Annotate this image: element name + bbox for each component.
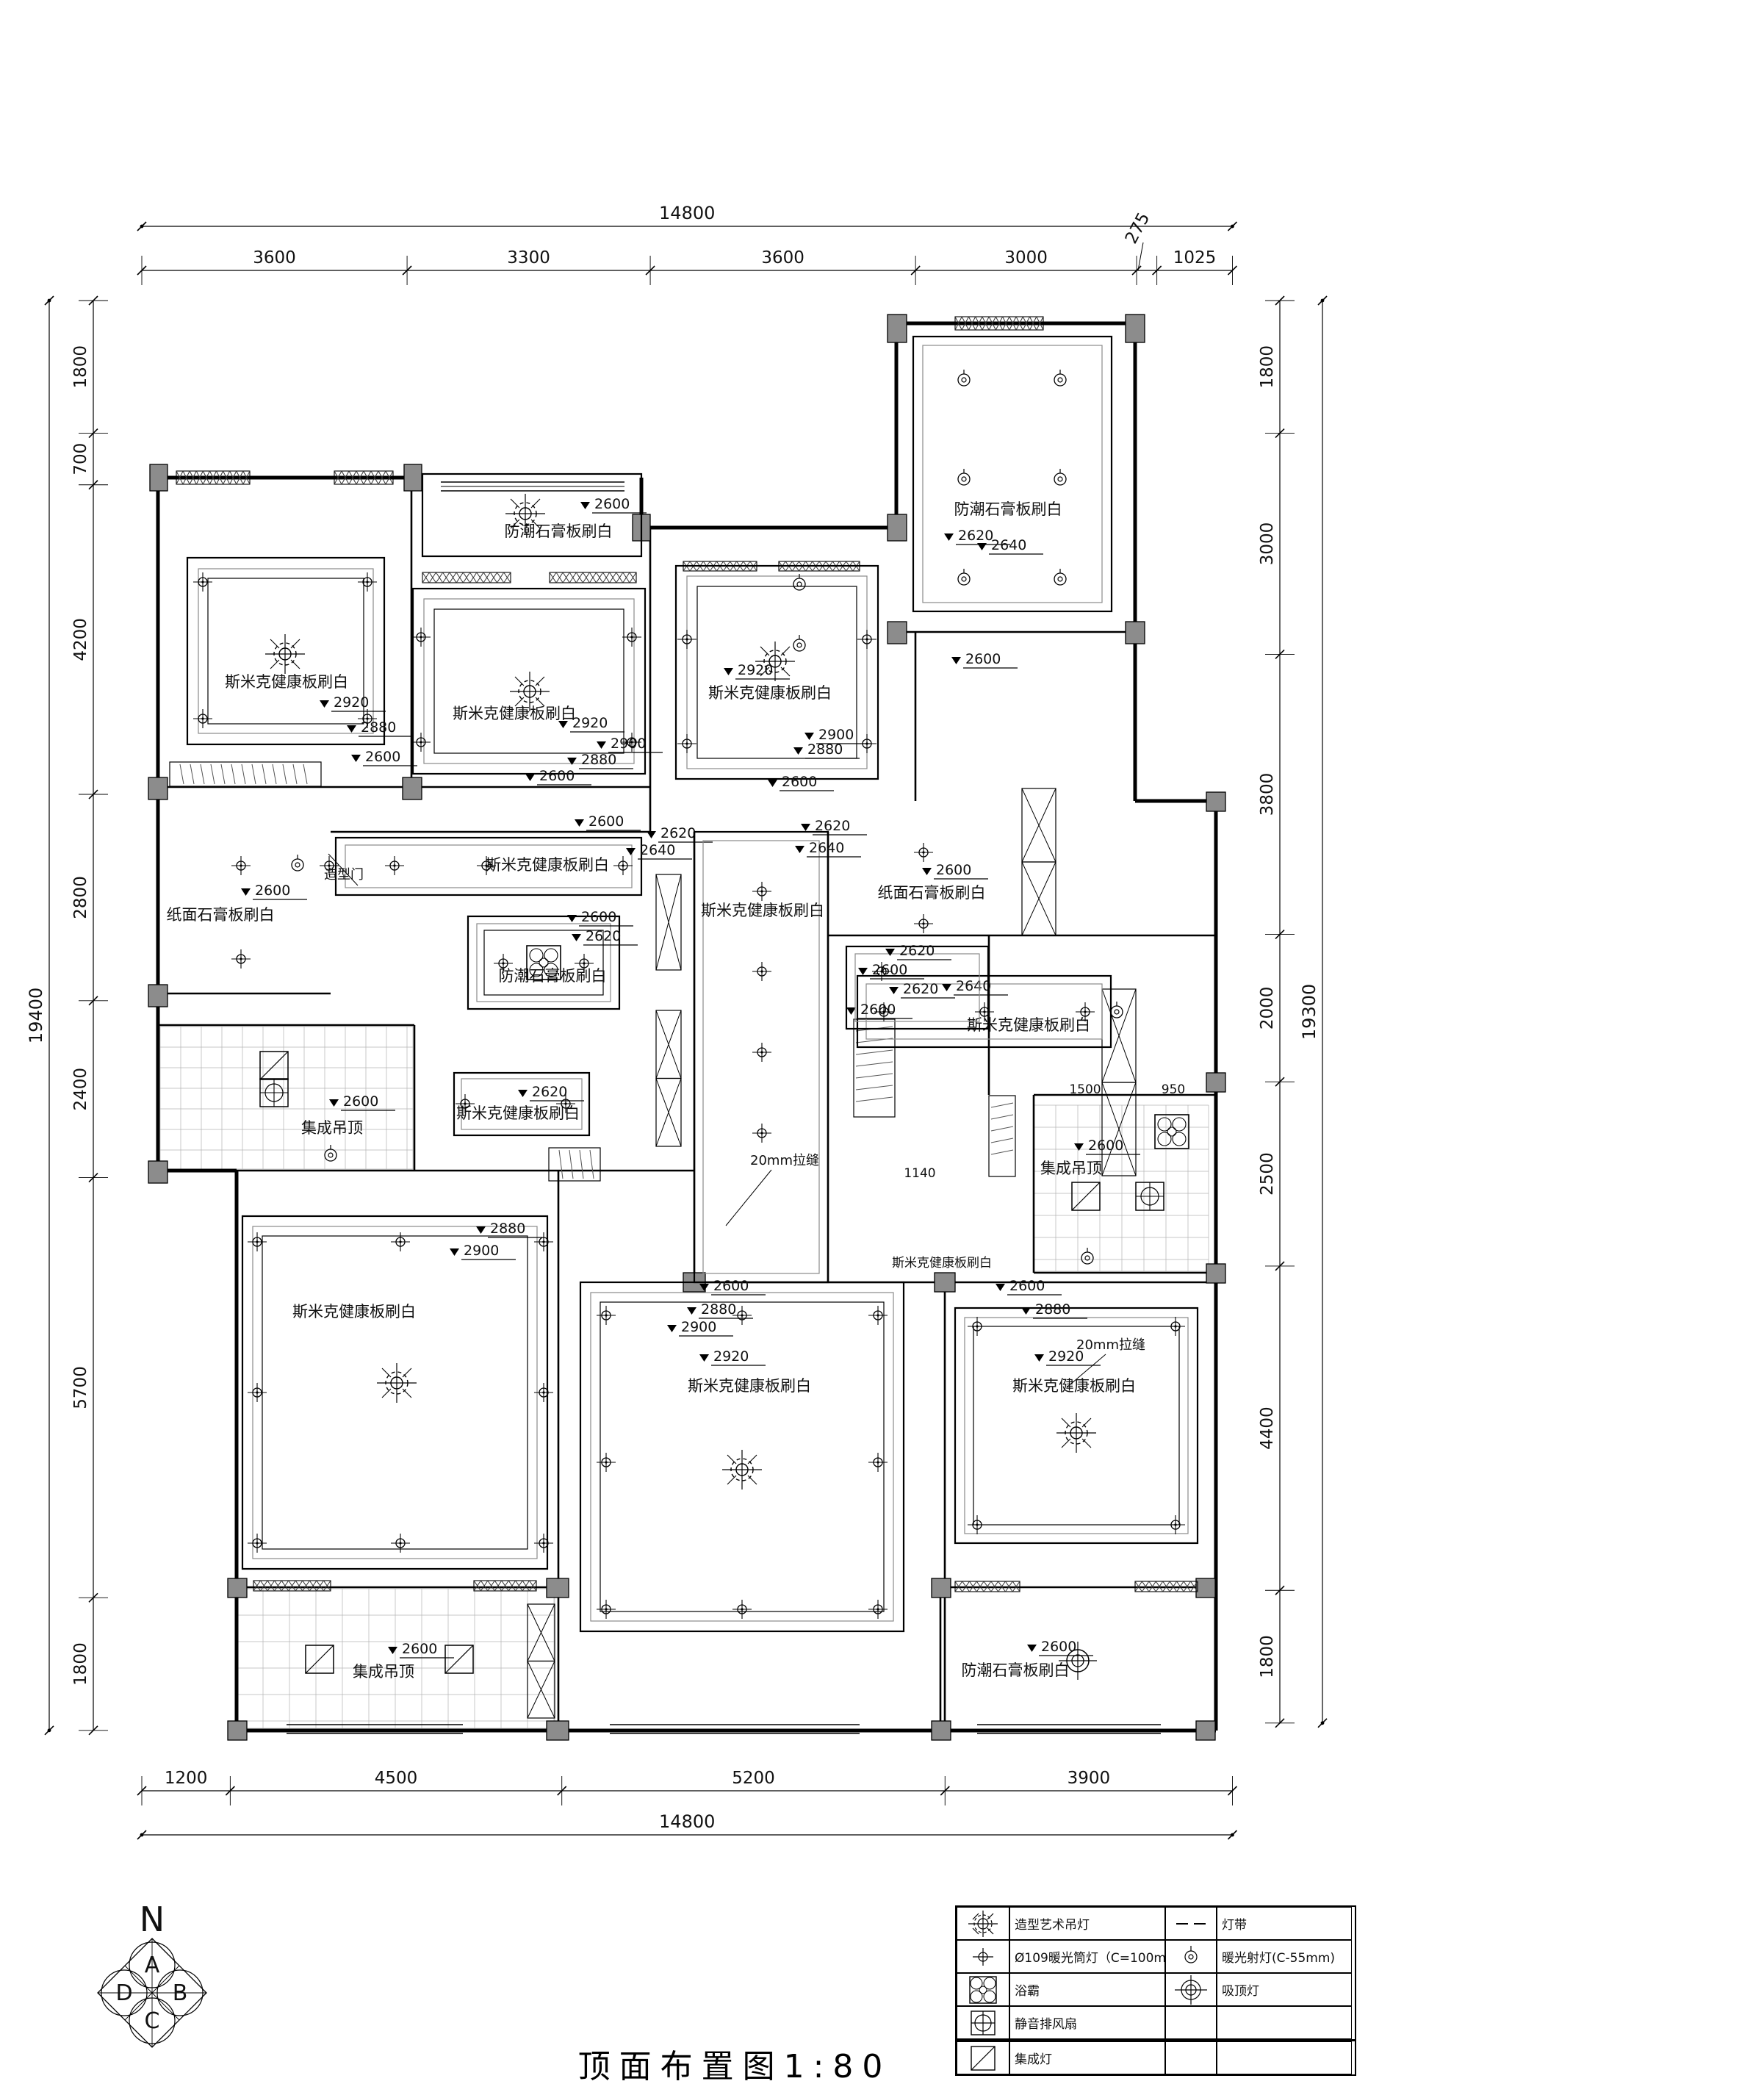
elevation-value: 2640 bbox=[956, 978, 991, 994]
elevation-marker: 2900 bbox=[667, 1319, 733, 1336]
legend-label: 浴霸 bbox=[1009, 1973, 1165, 2006]
legend-row: 浴霸吸顶灯 bbox=[957, 1973, 1355, 2006]
elevation-value: 2600 bbox=[1009, 1278, 1045, 1294]
compass: NABCD bbox=[98, 1900, 206, 2047]
legend-label bbox=[1217, 2006, 1352, 2039]
downlight-icon bbox=[677, 734, 696, 753]
chandelier-icon bbox=[1056, 1413, 1096, 1453]
ch-legend-icon bbox=[962, 1908, 1004, 1939]
annotation-text: 1140 bbox=[904, 1166, 935, 1181]
elevation-value: 2600 bbox=[936, 862, 971, 878]
dimension-value: 700 bbox=[71, 443, 90, 475]
legend-symbol-cell bbox=[957, 1907, 1009, 1940]
legend-row: Ø109暖光筒灯（C=100mm）暖光射灯(C-55mm) bbox=[957, 1940, 1355, 1973]
downlight-icon bbox=[231, 856, 251, 875]
legend-symbol-cell bbox=[957, 1940, 1009, 1973]
room: 纸面石膏板刷白2600 bbox=[878, 862, 989, 902]
window-coil bbox=[422, 572, 511, 583]
downlight-icon bbox=[752, 1043, 771, 1062]
elevation-marker: 2880 bbox=[567, 752, 633, 769]
elevation-value: 2880 bbox=[1035, 1301, 1070, 1318]
room: 斯米克健康板刷白260028802920 bbox=[955, 1278, 1198, 1543]
elevation-marker: 2640 bbox=[942, 978, 1008, 995]
downlight-icon bbox=[732, 1600, 752, 1619]
room: 集成吊顶2600 bbox=[301, 1093, 395, 1137]
dimension-total: 14800 bbox=[659, 203, 715, 223]
elevation-value: 2900 bbox=[464, 1243, 499, 1259]
cl-legend-icon bbox=[1170, 1974, 1212, 2005]
elevation-marker: 2600 bbox=[388, 1641, 454, 1658]
dimension-value: 1800 bbox=[71, 345, 90, 389]
dimension-value: 3000 bbox=[1004, 248, 1048, 267]
ceiling-plan-page: 斯米克健康板刷白292028802600斯米克健康板刷白292029002880… bbox=[0, 0, 1764, 2095]
annotation-text: 1500 bbox=[1069, 1082, 1101, 1097]
elevation-value: 2620 bbox=[958, 528, 993, 544]
dimension-value: 2500 bbox=[1258, 1152, 1277, 1196]
legend-row: 集成灯 bbox=[957, 2039, 1355, 2074]
dimension-value: 275 bbox=[1122, 209, 1154, 247]
compass-sector-label: B bbox=[173, 1980, 188, 2006]
integrated-light-icon bbox=[306, 1645, 334, 1673]
elevation-marker: 2600 bbox=[768, 774, 834, 791]
legend-label: 吸顶灯 bbox=[1217, 1973, 1352, 2006]
exhaust-fan-icon bbox=[1136, 1182, 1164, 1210]
dimension-value: 3900 bbox=[1068, 1769, 1111, 1788]
legend-table: 造型艺术吊灯灯带Ø109暖光筒灯（C=100mm）暖光射灯(C-55mm)浴霸吸… bbox=[955, 1905, 1356, 2076]
chandelier-icon bbox=[505, 494, 545, 533]
spotlight-icon bbox=[292, 855, 303, 871]
legend-label: 集成灯 bbox=[1009, 2041, 1165, 2074]
downlight-icon bbox=[914, 843, 933, 862]
downlight-icon bbox=[752, 1124, 771, 1143]
spotlight-icon bbox=[1054, 370, 1066, 386]
elevation-marker: 2600 bbox=[580, 496, 647, 513]
dimension-value: 5700 bbox=[71, 1366, 90, 1409]
dimension-value: 1800 bbox=[71, 1642, 90, 1686]
downlight-icon bbox=[411, 628, 431, 647]
downlight-icon bbox=[968, 1515, 987, 1534]
downlight-icon bbox=[752, 882, 771, 901]
downlight-icon bbox=[968, 1317, 987, 1336]
room-ceiling-label: 斯米克健康板刷白 bbox=[688, 1377, 811, 1395]
legend-label: 灯带 bbox=[1217, 1907, 1352, 1940]
room-ceiling-label: 纸面石膏板刷白 bbox=[167, 906, 275, 924]
spotlight-icon bbox=[1081, 1248, 1093, 1264]
room: 纸面石膏板刷白2600 bbox=[167, 883, 308, 924]
elevation-value: 2920 bbox=[572, 715, 608, 731]
elevation-value: 2600 bbox=[255, 883, 290, 899]
elevation-value: 2620 bbox=[815, 818, 850, 834]
elevation-marker: 2600 bbox=[951, 651, 1018, 668]
dimension-total: 19400 bbox=[26, 988, 46, 1043]
legend-symbol-cell bbox=[1165, 2006, 1217, 2039]
elevation-value: 2900 bbox=[681, 1319, 716, 1335]
window-coil bbox=[550, 572, 636, 583]
dimension-value: 3800 bbox=[1258, 773, 1277, 816]
il-legend-icon bbox=[962, 2043, 1004, 2074]
downlight-icon bbox=[411, 733, 431, 752]
elevation-value: 2600 bbox=[1088, 1138, 1123, 1154]
downlight-icon bbox=[597, 1453, 616, 1472]
x-hatch bbox=[656, 1010, 681, 1146]
elevation-value: 2880 bbox=[490, 1221, 525, 1237]
elevation-marker: 2600 bbox=[329, 1093, 395, 1110]
room-ceiling-label: 防潮石膏板刷白 bbox=[962, 1661, 1070, 1679]
elevation-marker: 2600 bbox=[525, 768, 591, 785]
elevation-marker: 2600 bbox=[1074, 1138, 1140, 1154]
downlight-icon bbox=[597, 1306, 616, 1325]
elevation-value: 2600 bbox=[343, 1093, 378, 1110]
dimension-bottom: 120045005200390014800 bbox=[137, 1769, 1236, 1839]
downlight-icon bbox=[1166, 1317, 1185, 1336]
legend-symbol-cell bbox=[1165, 1940, 1217, 1973]
window-sill bbox=[441, 482, 624, 491]
elevation-value: 2600 bbox=[402, 1641, 437, 1657]
room: 斯米克健康板刷白26202640 bbox=[694, 818, 867, 1282]
spotlight-icon bbox=[793, 635, 805, 651]
elevation-marker: 2600 bbox=[241, 883, 307, 899]
room: 集成吊顶2600 bbox=[353, 1641, 454, 1681]
elevation-marker: 2620 bbox=[885, 943, 951, 960]
annotation-text: 20mm拉缝 bbox=[750, 1153, 819, 1168]
legend-label: Ø109暖光筒灯（C=100mm） bbox=[1009, 1940, 1165, 1973]
closet-hatch bbox=[854, 1019, 895, 1117]
elevation-marker: 2880 bbox=[476, 1221, 542, 1237]
elevation-value: 2620 bbox=[586, 928, 621, 944]
dimension-value: 2800 bbox=[71, 876, 90, 919]
room-ceiling-label: 斯米克健康板刷白 bbox=[225, 673, 348, 691]
elevation-value: 2600 bbox=[588, 813, 624, 830]
x-hatch bbox=[656, 874, 681, 970]
closet-hatch bbox=[989, 1096, 1015, 1176]
drawing-title: 顶面布置图1:80 bbox=[529, 2040, 940, 2087]
room: 防潮石膏板刷白26002620 bbox=[468, 909, 638, 1009]
room-ceiling-label: 纸面石膏板刷白 bbox=[878, 884, 986, 902]
compass-sector-label: D bbox=[115, 1980, 132, 2006]
elevation-value: 2620 bbox=[660, 825, 696, 841]
legend-symbol-cell bbox=[1165, 1907, 1217, 1940]
rooms: 斯米克健康板刷白292028802600斯米克健康板刷白292029002880… bbox=[167, 337, 1198, 1681]
elevation-value: 2880 bbox=[361, 719, 396, 736]
elevation-marker: 2600 bbox=[1027, 1639, 1093, 1656]
room-ceiling-label: 斯米克健康板刷白 bbox=[701, 902, 824, 919]
elevation-value: 2920 bbox=[738, 662, 773, 678]
legend-symbol-cell bbox=[957, 2006, 1009, 2039]
dimension-total: 19300 bbox=[1299, 984, 1320, 1040]
closet-hatch bbox=[549, 1148, 600, 1181]
downlight-icon bbox=[597, 1600, 616, 1619]
legend-symbol-cell bbox=[1165, 1973, 1217, 2006]
spotlight-icon bbox=[958, 370, 970, 386]
elevation-marker: 2600 bbox=[996, 1278, 1062, 1295]
dimension-value: 4500 bbox=[375, 1769, 418, 1788]
legend-symbol-cell bbox=[957, 2041, 1009, 2074]
elevation-value: 2920 bbox=[334, 694, 369, 711]
closet-hatch bbox=[170, 762, 321, 786]
downlight-icon bbox=[248, 1232, 267, 1251]
spotlight-icon bbox=[1054, 469, 1066, 485]
strip-legend-icon bbox=[1170, 1908, 1212, 1939]
chandelier-icon bbox=[755, 642, 795, 681]
room-ceiling-label: 集成吊顶 bbox=[353, 1663, 414, 1681]
integrated-light-icon bbox=[1072, 1182, 1100, 1210]
elevation-value: 2600 bbox=[782, 774, 817, 790]
downlight-icon bbox=[231, 949, 251, 969]
elevation-marker: 2600 bbox=[575, 813, 641, 830]
dimension-value: 4400 bbox=[1258, 1406, 1277, 1450]
elevation-value: 2920 bbox=[713, 1348, 749, 1365]
compass-sector-label: A bbox=[145, 1952, 160, 1978]
elevation-marker: 2900 bbox=[450, 1243, 516, 1259]
elevation-marker: 2880 bbox=[1021, 1301, 1087, 1318]
downlight-icon bbox=[857, 630, 876, 649]
integrated-light-icon bbox=[445, 1645, 473, 1673]
elevation-value: 2640 bbox=[640, 842, 675, 858]
elevation-marker: 2640 bbox=[626, 842, 692, 859]
dimension-right: 180030003800200025004400180019300 bbox=[1258, 296, 1327, 1728]
downlight-icon bbox=[391, 1534, 410, 1553]
downlight-icon bbox=[613, 856, 633, 875]
floor-plan-drawing: 斯米克健康板刷白292028802600斯米克健康板刷白292029002880… bbox=[0, 0, 1764, 2095]
bath-heater-icon bbox=[1155, 1115, 1189, 1149]
room: 斯米克健康板刷白2920290028802600 bbox=[676, 566, 878, 791]
spotlight-icon bbox=[325, 1145, 336, 1161]
downlight-icon bbox=[857, 734, 876, 753]
downlight-icon bbox=[622, 628, 641, 647]
legend-symbol-cell bbox=[957, 1973, 1009, 2006]
room: 防潮石膏板刷白262026402600 bbox=[913, 337, 1112, 668]
elevation-value: 2600 bbox=[713, 1278, 749, 1294]
elevation-value: 2600 bbox=[539, 768, 575, 784]
legend-label: 静音排风扇 bbox=[1009, 2006, 1165, 2039]
legend-symbol-cell bbox=[1165, 2041, 1217, 2074]
downlight-icon bbox=[914, 914, 933, 933]
dimension-value: 3600 bbox=[253, 248, 296, 267]
downlight-icon bbox=[752, 962, 771, 981]
bh-legend-icon bbox=[962, 1974, 1004, 2005]
elevation-value: 2900 bbox=[611, 736, 646, 752]
chandelier-icon bbox=[722, 1450, 762, 1490]
room-ceiling-label: 斯米克健康板刷白 bbox=[292, 1303, 416, 1320]
room-ceiling-label: 防潮石膏板刷白 bbox=[954, 500, 1062, 518]
elevation-value: 2600 bbox=[860, 1002, 896, 1018]
downlight-icon bbox=[248, 1534, 267, 1553]
dimension-value: 3600 bbox=[761, 248, 804, 267]
room-ceiling-label: 斯米克健康板刷白 bbox=[1012, 1377, 1136, 1395]
dimension-total: 14800 bbox=[659, 1811, 715, 1832]
compass-north-label: N bbox=[140, 1900, 165, 1939]
elevation-value: 2880 bbox=[701, 1301, 736, 1318]
elevation-value: 2600 bbox=[965, 651, 1001, 667]
dimension-value: 4200 bbox=[71, 618, 90, 661]
room-ceiling-label: 集成吊顶 bbox=[1040, 1160, 1102, 1177]
elevation-marker: 2600 bbox=[351, 749, 417, 766]
compass-sector-label: C bbox=[145, 2008, 160, 2034]
legend-label: 造型艺术吊灯 bbox=[1009, 1907, 1165, 1940]
room-ceiling-label: 斯米克健康板刷白 bbox=[456, 1104, 580, 1122]
annotation-text: 斯米克健康板刷白 bbox=[892, 1256, 992, 1271]
spotlight-icon bbox=[1054, 569, 1066, 585]
elevation-value: 2620 bbox=[899, 943, 935, 959]
fan-legend-icon bbox=[962, 2008, 1004, 2038]
downlight-icon bbox=[358, 572, 377, 592]
elevation-marker: 2640 bbox=[795, 840, 861, 857]
elevation-value: 2620 bbox=[532, 1084, 567, 1100]
room: 防潮石膏板刷白2600 bbox=[962, 1639, 1094, 1679]
elevation-marker: 2620 bbox=[518, 1084, 584, 1101]
sp-legend-icon bbox=[1170, 1941, 1212, 1972]
x-hatch bbox=[1022, 788, 1056, 935]
legend-label bbox=[1217, 2041, 1352, 2074]
downlight-icon bbox=[868, 1306, 888, 1325]
spotlight-icon bbox=[958, 469, 970, 485]
window-coil bbox=[474, 1581, 536, 1591]
legend-label: 暖光射灯(C-55mm) bbox=[1217, 1940, 1352, 1973]
room-ceiling-label: 斯米克健康板刷白 bbox=[453, 705, 576, 722]
downlight-icon bbox=[193, 572, 212, 592]
downlight-icon bbox=[385, 856, 404, 875]
downlight-icon bbox=[868, 1453, 888, 1472]
room-ceiling-label: 斯米克健康板刷白 bbox=[708, 684, 832, 702]
room: 斯米克健康板刷白2920290028802600 bbox=[413, 589, 663, 785]
spotlight-icon bbox=[958, 569, 970, 585]
elevation-value: 2620 bbox=[903, 981, 938, 997]
dimension-value: 1200 bbox=[165, 1769, 208, 1788]
elevation-marker: 2920 bbox=[320, 694, 386, 711]
dimension-value: 5200 bbox=[732, 1769, 775, 1788]
window-coil bbox=[253, 1581, 331, 1591]
legend-row: 静音排风扇 bbox=[957, 2006, 1355, 2039]
dimension-value: 1025 bbox=[1173, 248, 1217, 267]
annotation-text: 20mm拉缝 bbox=[1076, 1337, 1145, 1353]
dimension-value: 2400 bbox=[71, 1068, 90, 1111]
annotation-text: 950 bbox=[1162, 1082, 1185, 1097]
downlight-icon bbox=[1166, 1515, 1185, 1534]
room-ceiling-label: 斯米克健康板刷白 bbox=[486, 856, 609, 874]
room-ceiling-label: 斯米克健康板刷白 bbox=[967, 1016, 1090, 1034]
legend-row: 造型艺术吊灯灯带 bbox=[957, 1907, 1355, 1940]
downlight-icon bbox=[248, 1383, 267, 1402]
dl-legend-icon bbox=[962, 1941, 1004, 1972]
chandelier-icon bbox=[510, 672, 550, 711]
dimension-value: 3000 bbox=[1258, 522, 1277, 566]
chandelier-icon bbox=[377, 1363, 417, 1403]
elevation-value: 2600 bbox=[594, 496, 630, 512]
window-lines bbox=[287, 482, 1161, 1733]
elevation-value: 2880 bbox=[581, 752, 616, 768]
tile-grid bbox=[237, 1589, 555, 1728]
elevation-marker: 2600 bbox=[922, 862, 988, 879]
elevation-value: 2900 bbox=[818, 727, 854, 743]
downlight-icon bbox=[193, 709, 212, 728]
x-hatch bbox=[528, 1604, 555, 1718]
dimension-value: 1800 bbox=[1258, 345, 1277, 389]
downlight-icon bbox=[391, 1232, 410, 1251]
dimension-top: 3600330036003000275102514800 bbox=[137, 203, 1236, 285]
elevation-value: 2640 bbox=[991, 537, 1026, 553]
room-ceiling-label: 防潮石膏板刷白 bbox=[499, 967, 607, 985]
chandelier-icon bbox=[265, 634, 305, 674]
elevation-value: 2600 bbox=[365, 749, 400, 765]
spotlight-icon bbox=[1111, 1002, 1123, 1018]
dimension-left: 18007004200280024005700180019400 bbox=[26, 296, 108, 1735]
downlight-icon bbox=[677, 630, 696, 649]
annotation-text: 造型门 bbox=[324, 867, 364, 883]
elevation-value: 2880 bbox=[807, 741, 843, 758]
elevation-value: 2600 bbox=[581, 909, 616, 925]
elevation-marker: 2620 bbox=[647, 825, 713, 842]
elevation-value: 2640 bbox=[809, 840, 844, 856]
room-ceiling-label: 防潮石膏板刷白 bbox=[505, 522, 613, 540]
downlight-icon bbox=[868, 1600, 888, 1619]
room: 斯米克健康板刷白28802900 bbox=[242, 1216, 547, 1569]
dimension-value: 1800 bbox=[1258, 1635, 1277, 1678]
room-ceiling-label: 集成吊顶 bbox=[301, 1119, 363, 1137]
dimension-value: 3300 bbox=[507, 248, 550, 267]
room: 斯米克健康板刷白292028802600 bbox=[187, 558, 417, 766]
elevation-marker: 2920 bbox=[699, 1348, 766, 1365]
dimension-value: 2000 bbox=[1258, 987, 1277, 1030]
